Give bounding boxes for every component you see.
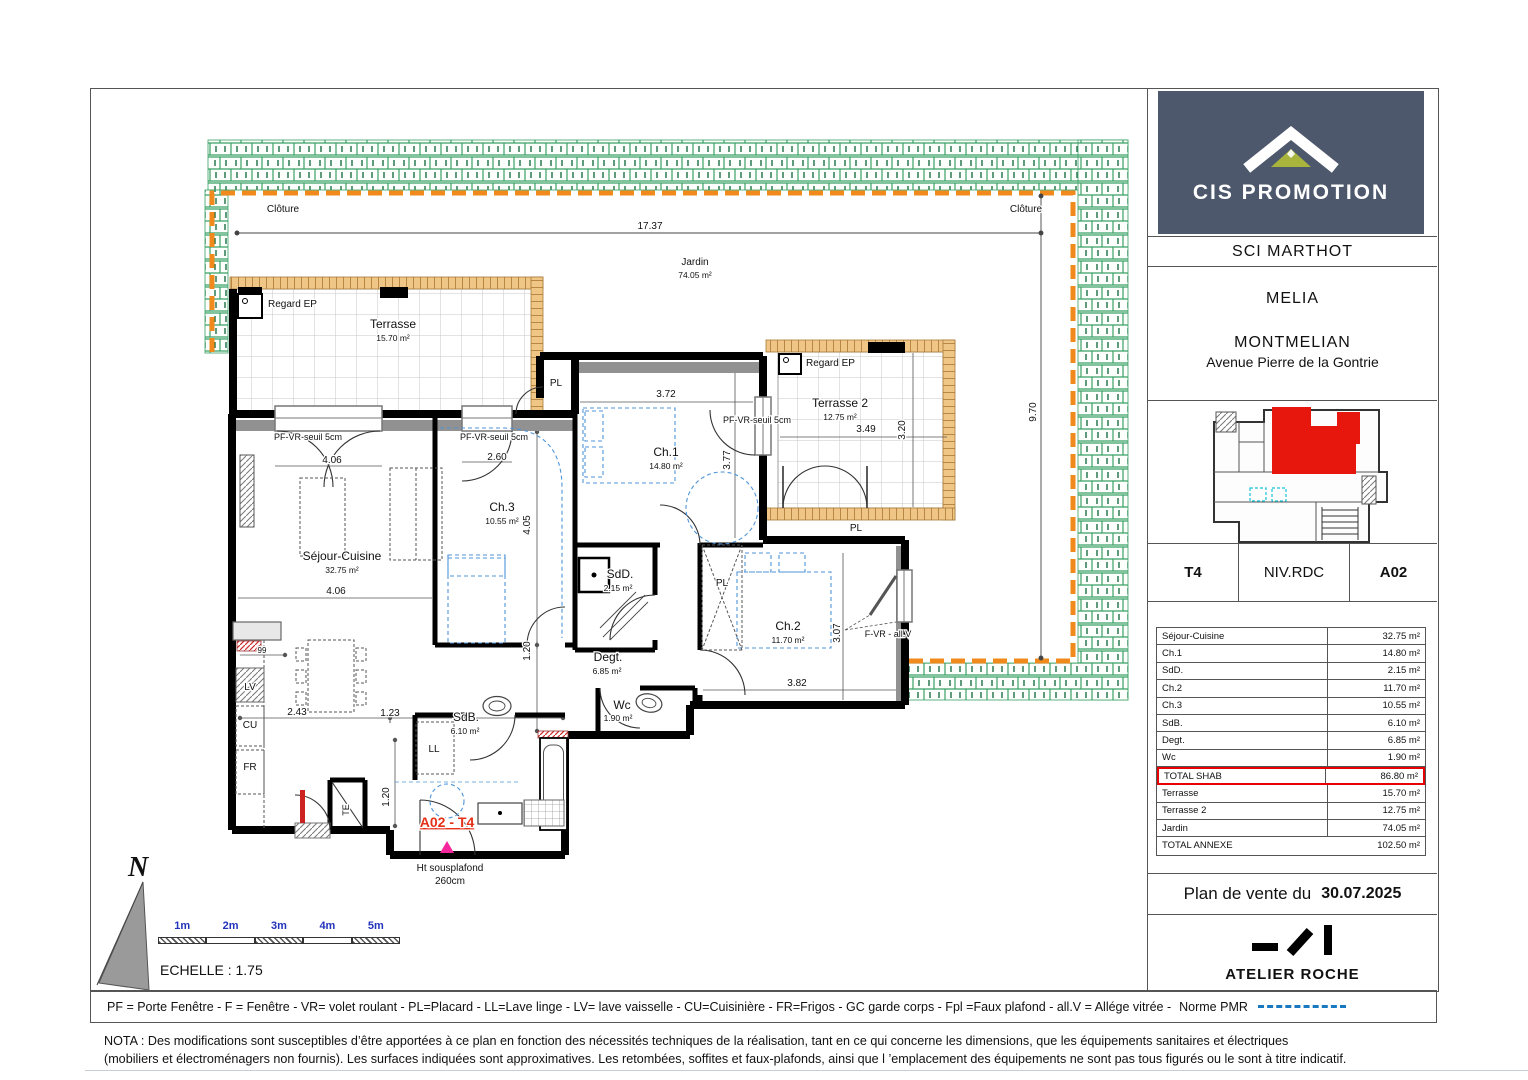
area-row-label: Ch.1: [1157, 645, 1328, 661]
area-row-value: 74.05 m²: [1328, 823, 1425, 834]
key-plan: [1154, 402, 1431, 543]
north-arrow: [97, 882, 149, 990]
entrance-triangle: [440, 841, 454, 853]
company-name: CIS PROMOTION: [1193, 181, 1389, 205]
shower-floor: [524, 800, 564, 826]
plan-label: 99: [258, 646, 267, 655]
plan-label: 17.37: [637, 221, 662, 232]
kitchen-sink: [233, 622, 281, 640]
street-name: Avenue Pierre de la Gontrie: [1148, 354, 1437, 370]
scale-bar-segment: [255, 937, 303, 944]
area-row-label: Ch.3: [1157, 698, 1328, 714]
area-row-label: Terrasse 2: [1157, 803, 1328, 819]
program-name: MELIA: [1148, 290, 1437, 308]
plan-page: ClôtureClôture17.37Jardin74.05 m²9.70Reg…: [0, 0, 1528, 1080]
plan-label: Clôture: [267, 204, 300, 215]
plan-label: Ch.3: [489, 500, 515, 514]
scale-bar: 1m2m3m4m5m: [158, 928, 400, 946]
plan-label: 3.72: [656, 389, 676, 400]
unit-identity-row: T4 NIV.RDC A02: [1148, 543, 1437, 602]
plan-label: A02 - T4: [420, 814, 475, 830]
area-row-value: 102.50 m²: [1328, 840, 1425, 851]
plan-label: 2.43: [287, 707, 307, 718]
plan-label: Degt.: [594, 650, 623, 664]
legend-text: PF = Porte Fenêtre - F = Fenêtre - VR= v…: [107, 1000, 1171, 1014]
area-row-value: 11.70 m²: [1328, 683, 1425, 694]
plan-label: PF-VR-seuil 5cm: [274, 432, 342, 442]
area-row: SdD.2.15 m²: [1157, 663, 1425, 680]
window-balcony: [295, 823, 330, 838]
area-row: Degt.6.85 m²: [1157, 732, 1425, 749]
scale-bar-label: 3m: [271, 920, 287, 932]
legend-pmr-label: Norme PMR: [1179, 1000, 1248, 1014]
plan-label: Ht sousplafond: [417, 863, 484, 874]
sale-plan-date: 30.07.2025: [1321, 885, 1401, 903]
toilet-wc: [634, 691, 663, 714]
page-bottom-rule: [85, 1070, 1528, 1071]
entry-marker: [300, 790, 305, 823]
plan-label: 4.05: [522, 515, 533, 535]
scale-text: ECHELLE : 1.75: [160, 962, 263, 978]
area-row-value: 2.15 m²: [1328, 665, 1425, 676]
area-row: Ch.310.55 m²: [1157, 698, 1425, 715]
client-name: SCI MARTHOT: [1148, 237, 1437, 266]
plan-label: 12.75 m²: [823, 412, 857, 422]
plan-label: Jardin: [681, 257, 708, 268]
plan-label: PL: [716, 578, 729, 589]
sink-sdb: [483, 697, 511, 716]
nota-block: NOTA : Des modifications sont susceptibl…: [104, 1032, 1444, 1069]
scale-bar-label: 4m: [319, 920, 335, 932]
plan-label: LL: [428, 744, 440, 755]
plan-label: FR: [243, 762, 256, 773]
unit-number: A02: [1350, 544, 1437, 601]
architect-block: ATELIER ROCHE: [1148, 915, 1437, 990]
scale-bar-segment: [303, 937, 351, 944]
plan-label: 2.60: [487, 452, 507, 463]
plan-label: Regard EP: [268, 299, 317, 310]
area-row: SdB.6.10 m²: [1157, 715, 1425, 732]
plan-label: 3.49: [856, 424, 876, 435]
area-row-label: Séjour-Cuisine: [1157, 628, 1328, 644]
area-row-value: 1.90 m²: [1328, 752, 1425, 763]
project-address: MELIA MONTMELIAN Avenue Pierre de la Gon…: [1148, 266, 1437, 400]
area-row-label: Degt.: [1157, 732, 1328, 748]
scale-bar-label: 1m: [174, 920, 190, 932]
plan-label: Wc: [613, 698, 630, 712]
area-row-value: 6.85 m²: [1328, 735, 1425, 746]
area-row-label: Terrasse: [1157, 785, 1328, 801]
company-logo: CIS PROMOTION: [1158, 91, 1424, 234]
area-row: Séjour-Cuisine32.75 m²: [1157, 628, 1425, 645]
area-row-value: 6.10 m²: [1328, 718, 1425, 729]
plan-label: PL: [550, 378, 563, 389]
area-row: TOTAL ANNEXE102.50 m²: [1157, 837, 1425, 854]
architect-logo-icon: [1238, 925, 1348, 959]
plan-label: 14.80 m²: [649, 461, 683, 471]
city-name: MONTMELIAN: [1148, 334, 1437, 352]
plan-label: 1.20: [522, 641, 533, 661]
area-row: TOTAL SHAB86.80 m²: [1157, 767, 1425, 785]
area-row-value: 12.75 m²: [1328, 805, 1425, 816]
area-row: Jardin74.05 m²: [1157, 820, 1425, 837]
title-block: CIS PROMOTION SCI MARTHOT MELIA MONTMELI…: [1147, 88, 1437, 990]
plan-label: Regard EP: [806, 358, 855, 369]
plan-label: TE: [341, 804, 351, 816]
area-row-label: Ch.2: [1157, 680, 1328, 696]
unit-level: NIV.RDC: [1239, 544, 1350, 601]
plan-label: LV: [244, 682, 256, 693]
plan-label: Séjour-Cuisine: [303, 549, 382, 563]
plan-label: Terrasse: [370, 317, 416, 331]
plan-label: 3.77: [722, 450, 733, 470]
area-row-value: 86.80 m²: [1326, 771, 1423, 782]
plan-label: 3.82: [787, 678, 807, 689]
area-table: Séjour-Cuisine32.75 m²Ch.114.80 m²SdD.2.…: [1156, 627, 1426, 856]
plan-label: Terrasse 2: [812, 396, 868, 410]
plan-label: 260cm: [435, 876, 465, 887]
plan-label: PF-VR-seuil 5cm: [460, 432, 528, 442]
legend-strip: PF = Porte Fenêtre - F = Fenêtre - VR= v…: [90, 990, 1437, 1023]
plan-label: 6.10 m²: [451, 726, 480, 736]
architect-name: ATELIER ROCHE: [1148, 966, 1437, 983]
furniture: [236, 408, 831, 828]
pmr-dash-line: [1258, 1005, 1346, 1008]
area-row-label: SdB.: [1157, 715, 1328, 731]
scale-bar-label: 5m: [368, 920, 384, 932]
plan-label: PL: [850, 523, 863, 534]
area-row-label: SdD.: [1157, 663, 1328, 679]
plan-label: PF-VR-seuil 5cm: [723, 415, 791, 425]
doors: [277, 387, 755, 855]
plan-label: 3.07: [832, 623, 843, 643]
window-ch3: [462, 406, 512, 431]
sale-plan-row: Plan de vente du 30.07.2025: [1148, 873, 1437, 915]
window-ch1: [755, 397, 771, 455]
plan-label: 11.70 m²: [772, 635, 805, 645]
area-row: Terrasse15.70 m²: [1157, 785, 1425, 802]
north-label: N: [128, 852, 148, 884]
area-row: Ch.211.70 m²: [1157, 680, 1425, 697]
plan-label: 74.05 m²: [678, 270, 712, 280]
area-row-value: 14.80 m²: [1328, 648, 1425, 659]
plan-label: 6.85 m²: [593, 666, 622, 676]
area-row-label: Wc: [1157, 750, 1328, 766]
area-row-value: 15.70 m²: [1328, 788, 1425, 799]
plan-label: 2.15 m²: [604, 583, 633, 593]
plan-label: 1.20: [381, 787, 392, 807]
scale-bar-segment: [206, 937, 254, 944]
plan-label: 32.75 m²: [325, 565, 359, 575]
plan-label: 1.23: [380, 708, 400, 719]
plan-label: Ch.2: [775, 619, 801, 633]
plan-label: 4.06: [326, 586, 346, 597]
area-row-label: TOTAL SHAB: [1159, 769, 1326, 783]
nota-line-1: NOTA : Des modifications sont susceptibl…: [104, 1032, 1444, 1050]
area-row-value: 10.55 m²: [1328, 700, 1425, 711]
plan-label: 10.55 m²: [485, 516, 519, 526]
plan-label: F-VR - all.V: [865, 629, 912, 639]
area-row: Wc1.90 m²: [1157, 750, 1425, 767]
plan-label: Clôture: [1010, 204, 1043, 215]
unit-type: T4: [1148, 544, 1239, 601]
nota-line-2: (mobiliers et électroménagers non fourni…: [104, 1050, 1444, 1068]
plan-label: SdB.: [453, 710, 479, 724]
mountain-logo-icon: [1243, 121, 1339, 173]
area-row: Terrasse 212.75 m²: [1157, 803, 1425, 820]
scale-bar-label: 2m: [223, 920, 239, 932]
plan-label: 4.06: [322, 455, 342, 466]
area-row: Ch.114.80 m²: [1157, 645, 1425, 662]
area-row-label: Jardin: [1157, 820, 1328, 836]
plan-label: SdD.: [607, 567, 634, 581]
plan-label: CU: [243, 720, 257, 731]
terrasse-1: [230, 277, 543, 417]
area-row-value: 32.75 m²: [1328, 631, 1425, 642]
area-row-label: TOTAL ANNEXE: [1157, 837, 1328, 854]
plan-label: 9.70: [1028, 402, 1039, 422]
plan-label: 3.20: [897, 420, 908, 440]
window-sejour: [275, 406, 382, 431]
plan-label: Ch.1: [653, 445, 679, 459]
window-ch2: [845, 570, 912, 630]
plan-label: 15.70 m²: [376, 333, 410, 343]
plan-label: 1.90 m²: [604, 713, 633, 723]
scale-bar-segment: [158, 937, 206, 944]
sale-plan-title: Plan de vente du: [1184, 884, 1312, 904]
scale-bar-segment: [352, 937, 400, 944]
